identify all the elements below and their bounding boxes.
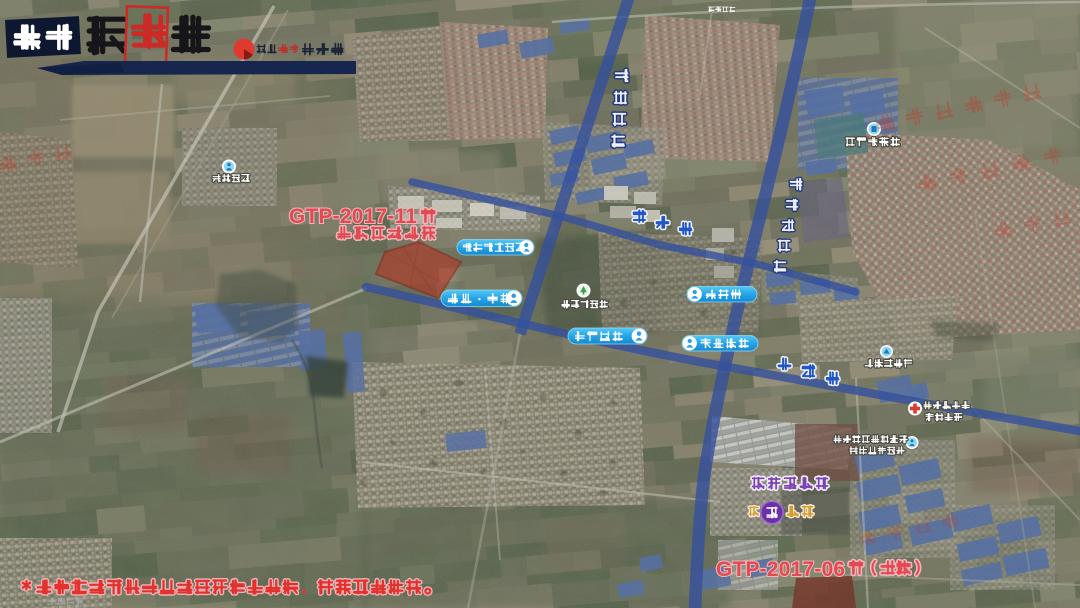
svg-text:GTP-2017-11: GTP-2017-11 <box>289 205 417 228</box>
svg-text:GTP-2017-06: GTP-2017-06 <box>716 558 845 581</box>
